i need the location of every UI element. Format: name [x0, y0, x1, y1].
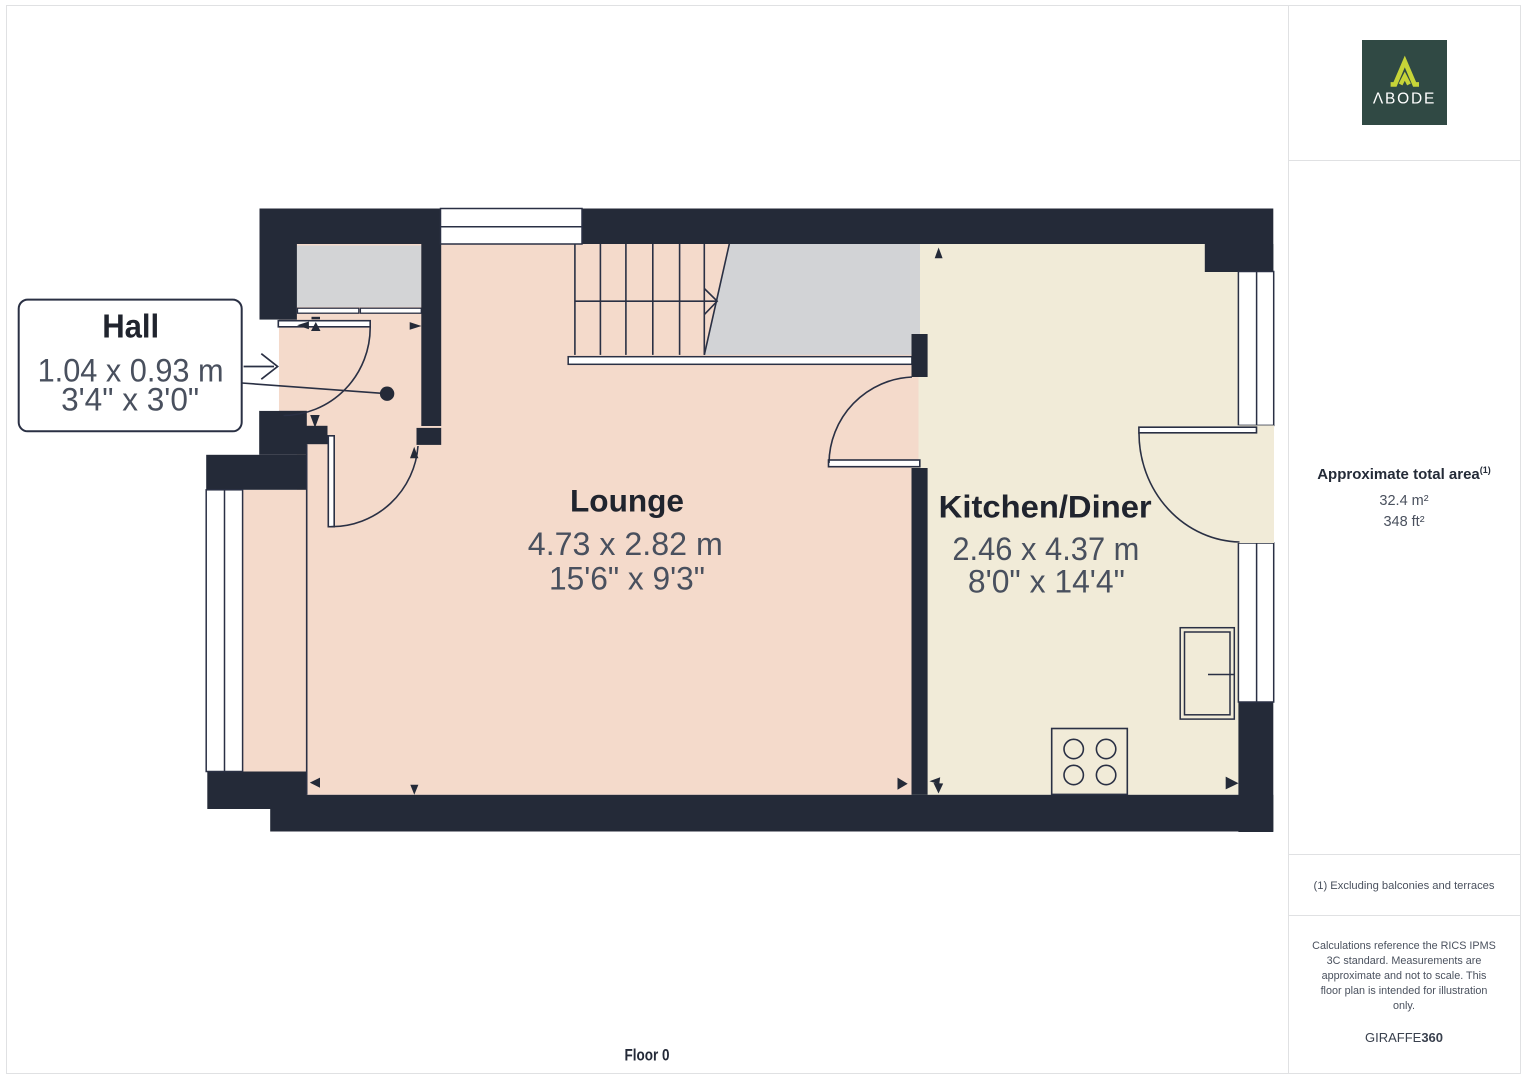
svg-text:ΛBODE: ΛBODE [1373, 91, 1436, 108]
svg-text:Hall: Hall [102, 308, 159, 345]
svg-text:348 ft²: 348 ft² [1383, 514, 1424, 530]
svg-text:Floor 0: Floor 0 [625, 1047, 670, 1065]
svg-text:Calculations reference the RIC: Calculations reference the RICS IPMS [1312, 940, 1496, 952]
svg-text:4.73 x 2.82 m: 4.73 x 2.82 m [528, 526, 723, 562]
svg-text:approximate and not to scale.: approximate and not to scale. This [1322, 970, 1487, 982]
svg-text:32.4 m²: 32.4 m² [1379, 493, 1428, 509]
svg-text:3'4" x 3'0": 3'4" x 3'0" [61, 382, 199, 418]
svg-text:(1) Excluding balconies and te: (1) Excluding balconies and terraces [1314, 880, 1495, 892]
svg-text:GIRAFFE360: GIRAFFE360 [1365, 1030, 1443, 1045]
svg-text:2.46 x 4.37 m: 2.46 x 4.37 m [952, 531, 1139, 567]
svg-text:only.: only. [1393, 1000, 1415, 1012]
svg-text:Approximate total area(1): Approximate total area(1) [1317, 465, 1491, 483]
svg-text:3C standard. Measurements are: 3C standard. Measurements are [1327, 955, 1482, 967]
svg-text:15'6" x 9'3": 15'6" x 9'3" [549, 561, 705, 597]
svg-text:Lounge: Lounge [570, 483, 684, 519]
svg-text:8'0" x 14'4": 8'0" x 14'4" [968, 564, 1125, 600]
svg-text:floor plan is intended for ill: floor plan is intended for illustration [1321, 985, 1488, 997]
svg-text:Kitchen/Diner: Kitchen/Diner [939, 489, 1152, 525]
